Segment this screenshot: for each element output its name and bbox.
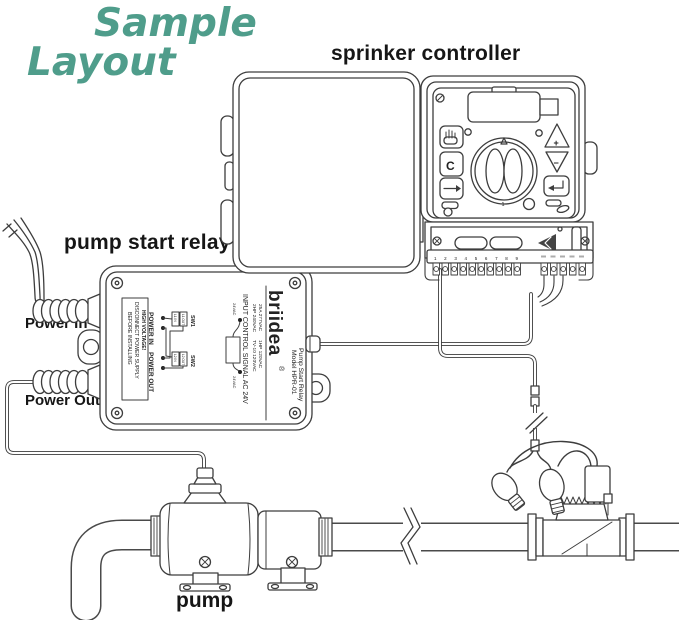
svg-text:DISCONNECT POWER SUPPLY: DISCONNECT POWER SUPPLY bbox=[133, 302, 139, 379]
power-in-wires bbox=[3, 218, 50, 314]
valve-body bbox=[543, 520, 620, 556]
sw1-label: SW1 bbox=[189, 315, 195, 327]
svg-text:L1 IN: L1 IN bbox=[173, 314, 177, 322]
power-out-conduit bbox=[33, 365, 100, 399]
power-out-terminal-label: POWER OUT bbox=[147, 352, 154, 392]
manual-start-button bbox=[440, 126, 463, 148]
power-in-terminal-label: POWER IN bbox=[147, 312, 154, 345]
pump-drawing bbox=[151, 468, 332, 591]
enter-button bbox=[544, 176, 569, 196]
lcd-display bbox=[468, 92, 540, 122]
door-latch bbox=[221, 200, 234, 244]
relay-output-connector bbox=[306, 336, 320, 352]
model-number: Model HPR-01 bbox=[290, 350, 297, 395]
plus-button-label: + bbox=[554, 138, 559, 148]
svg-text:L2 OUT: L2 OUT bbox=[181, 354, 185, 365]
svg-text:24VAC: 24VAC bbox=[232, 303, 237, 315]
svg-text:24VAC: 24VAC bbox=[232, 376, 237, 388]
bleed-screw bbox=[604, 494, 612, 503]
pipe-coupling bbox=[319, 518, 332, 556]
svg-text:TV-10 120VAC: TV-10 120VAC bbox=[251, 340, 257, 372]
svg-text:2HP 240VAC: 2HP 240VAC bbox=[251, 304, 257, 333]
svg-text:L2 IN: L2 IN bbox=[173, 354, 177, 362]
solenoid-wires bbox=[507, 441, 597, 472]
svg-text:25A 277VAC: 25A 277VAC bbox=[257, 304, 263, 332]
program-dial bbox=[471, 138, 537, 204]
sample-layout-diagram: Sample Layout sprinker controller pump s… bbox=[0, 0, 679, 620]
svg-text:1HP 120VAC: 1HP 120VAC bbox=[257, 340, 263, 369]
terminal-screws bbox=[433, 263, 586, 275]
valve-flange bbox=[528, 514, 536, 560]
warning-text: HIGH VOLTAGE! bbox=[140, 310, 146, 351]
next-button bbox=[440, 178, 463, 199]
controller-door bbox=[221, 72, 423, 273]
svg-text:BEFORE INSTALLING: BEFORE INSTALLING bbox=[126, 312, 132, 365]
wire-nut-icon bbox=[487, 468, 530, 514]
c-button-label: C bbox=[446, 159, 455, 173]
power-in-conduit bbox=[33, 294, 100, 328]
terminal-strip bbox=[427, 250, 593, 263]
input-signal-label: INPUT CONTROL SIGNAL AC 24V bbox=[241, 294, 248, 404]
valve-flange bbox=[626, 514, 634, 560]
door-latch bbox=[221, 116, 234, 156]
registered-mark: ® bbox=[277, 366, 285, 372]
brand-name: briidea bbox=[264, 290, 285, 356]
sw2-label: SW2 bbox=[189, 355, 195, 367]
terminal-numbers: 1 2 3 4 5 6 7 8 9 bbox=[434, 256, 518, 261]
dial-position-label: 1 bbox=[502, 202, 505, 208]
svg-text:L1 OUT: L1 OUT bbox=[181, 314, 185, 325]
sprinkler-controller-drawing bbox=[421, 76, 597, 280]
pump-wire-cap bbox=[197, 468, 213, 478]
diagram-drawing: HIGH VOLTAGE! DISCONNECT POWER SUPPLY BE… bbox=[0, 0, 679, 620]
model-name: Pump Start Relay bbox=[297, 348, 304, 402]
minus-button-label: − bbox=[554, 158, 559, 168]
